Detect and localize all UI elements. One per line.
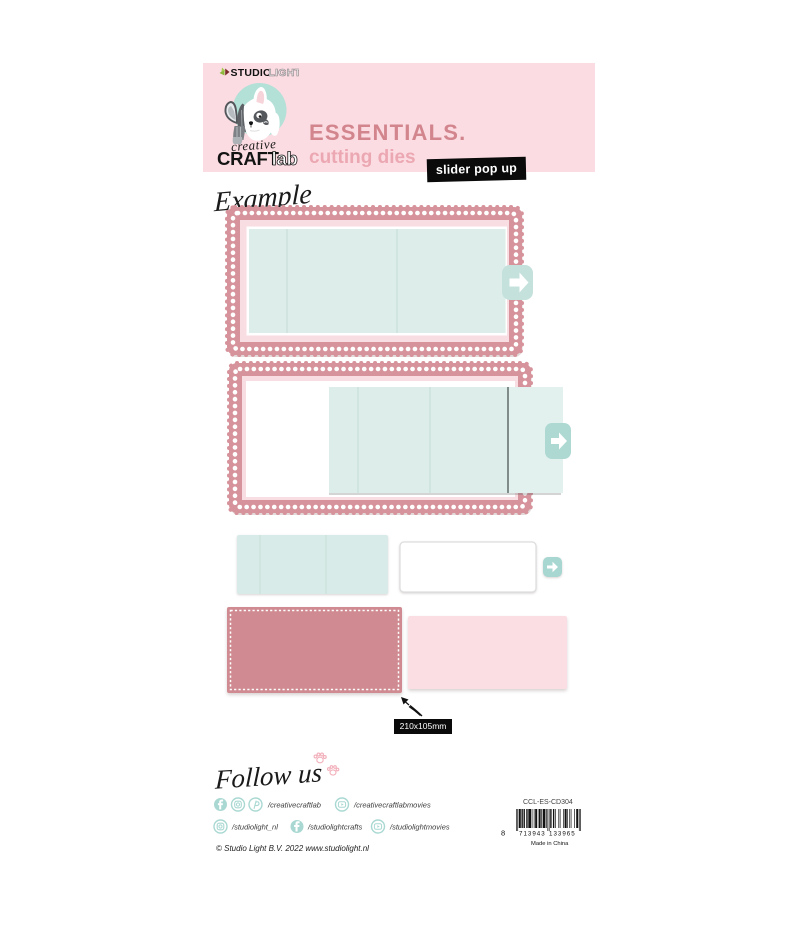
svg-text:lab: lab — [272, 148, 298, 169]
svg-text:Made in China: Made in China — [531, 841, 569, 847]
svg-text:CRAFT: CRAFT — [217, 148, 280, 169]
svg-text:/studiolightcrafts: /studiolightcrafts — [307, 823, 362, 832]
svg-text:713943: 713943 — [519, 831, 546, 838]
svg-text:/studiolightmovies: /studiolightmovies — [389, 823, 450, 832]
svg-text:8: 8 — [501, 829, 505, 838]
svg-text:/creativecraftlab: /creativecraftlab — [267, 801, 321, 810]
svg-text:STUDIO: STUDIO — [231, 67, 272, 79]
svg-text:/studiolight_nl: /studiolight_nl — [231, 823, 278, 832]
svg-text:/creativecraftlabmovies: /creativecraftlabmovies — [353, 801, 431, 810]
svg-text:133965: 133965 — [549, 831, 576, 838]
svg-text:LIGHT: LIGHT — [269, 67, 300, 79]
